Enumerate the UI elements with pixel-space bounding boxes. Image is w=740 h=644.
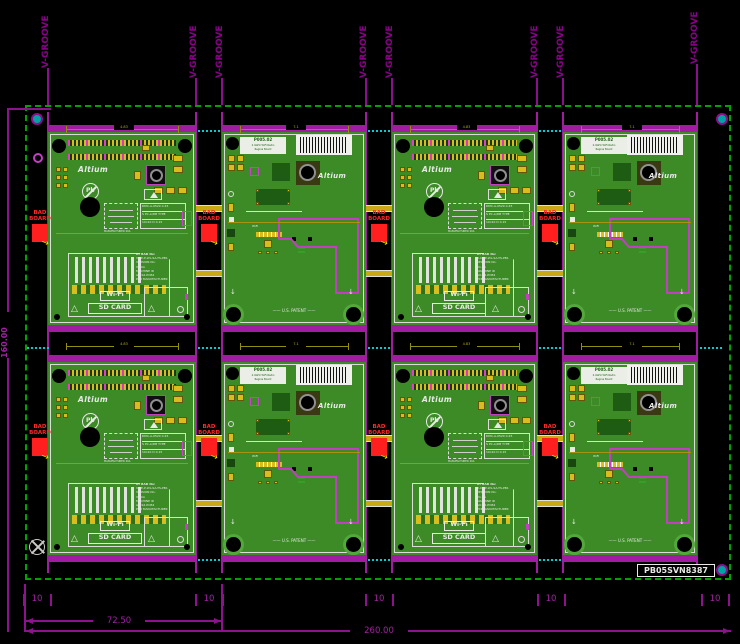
detail-dim-tick [66, 343, 67, 350]
fine-pitch-footprint [256, 419, 290, 435]
smd-component [134, 171, 141, 180]
smd-component [266, 481, 270, 484]
bad-board-label: BOARD [533, 216, 567, 222]
mounting-hole [396, 139, 410, 153]
smd-component [517, 385, 527, 392]
footprint-pad [597, 202, 600, 205]
diode-component [144, 189, 162, 200]
detail-dim-text: 4.83 [457, 342, 477, 347]
footprint-pad [287, 189, 290, 192]
rail-dim-text: 10 [197, 594, 221, 605]
v-groove-label: V-GROOVE [41, 4, 53, 68]
board-title-box: P005.022.4GHz WiFi RadioRegina Board [240, 137, 286, 154]
orientation-arrow-icon: ↓ [230, 519, 238, 528]
scribble-line [108, 216, 134, 217]
v-groove-label: V-GROOVE [690, 0, 702, 64]
polarity-arrow-icon: △ [415, 535, 425, 545]
smd-component [166, 187, 175, 194]
dim-arrow [26, 628, 33, 634]
scribble-line [110, 452, 132, 453]
board-top-edge [392, 355, 537, 362]
orientation-arrow-icon: ↓ [571, 289, 579, 298]
rf-module-can [299, 164, 316, 181]
detail-dim-tick [581, 126, 582, 133]
test-point [569, 191, 575, 197]
smd-component [569, 385, 576, 392]
footprint-pad [597, 432, 600, 435]
corner-hole [525, 544, 531, 550]
footprint-pad [628, 202, 631, 205]
bad-board-label: BOARD [23, 430, 57, 436]
tooling-hole [716, 564, 728, 576]
registration-dots [539, 559, 561, 561]
board-title-box: P005.022.4GHz WiFi RadioRegina Board [581, 137, 627, 154]
mounting-hole [226, 307, 241, 322]
mounting-hole [519, 369, 533, 383]
rf-module [296, 161, 320, 185]
smd-component [599, 251, 603, 254]
altium-logo: Altium [422, 166, 470, 177]
board-info-line: PCB MANUFACTURER [136, 508, 190, 512]
smd-component [578, 385, 585, 392]
corner-hole [54, 314, 60, 320]
bad-board-marker: BADBOARD→ [362, 424, 396, 476]
mounting-hole [178, 139, 192, 153]
diode-arrow [494, 192, 502, 198]
detail-dim-text: 7.1 [286, 342, 306, 347]
barcode [627, 135, 683, 155]
scribble-line [109, 440, 133, 441]
side-connector [523, 441, 533, 456]
part-table-row: DMC-A-0520 0.45 [142, 435, 185, 442]
barcode-stripes [631, 367, 679, 383]
pcb-board-type-a: AltiumPbMANUFACTURED 20ADMC-A-0520 0.45S… [48, 355, 196, 562]
board-bottom-edge [563, 555, 697, 562]
smd-component [228, 394, 235, 401]
footprint-pad [287, 419, 290, 422]
smd-component [142, 375, 150, 381]
part-table-row: 10x10 D 0.15 [142, 451, 185, 458]
rf-module [296, 391, 320, 415]
corner-hole [398, 314, 404, 320]
smd-component [569, 243, 575, 251]
corner-hole [184, 544, 190, 550]
qfn-footprint [613, 163, 631, 181]
smd-component [517, 166, 527, 173]
bad-board-label: BOARD [192, 430, 226, 436]
detail-dim-text: 7.1 [622, 125, 642, 130]
smd-component [237, 385, 244, 392]
smd-component [237, 394, 244, 401]
bad-board-arrow-icon: → [209, 451, 224, 465]
smd-component [56, 405, 61, 410]
board-info-line: PCB MANUFACTURER [477, 508, 531, 512]
barcode [627, 365, 683, 385]
smd-component [63, 167, 68, 172]
bad-board-arrow-icon: → [209, 237, 224, 251]
v-groove-label: V-GROOVE [359, 14, 371, 78]
v-groove-label: V-GROOVE [385, 14, 397, 78]
tooling-hole [31, 113, 43, 125]
orientation-arrow-icon: ↓ [348, 519, 356, 528]
detail-dim-tick [348, 126, 349, 133]
registration-dots [539, 130, 561, 132]
smd-component [258, 481, 262, 484]
v-groove-leader-line [562, 78, 564, 105]
test-point [177, 536, 184, 543]
label-scribble-box [104, 203, 138, 229]
barcode-stripes [300, 137, 348, 153]
mounting-hole [519, 139, 533, 153]
footprint-pad [256, 189, 259, 192]
fine-pitch-footprint [597, 419, 631, 435]
bad-board-marker: BADBOARD→ [362, 210, 396, 262]
smd-component [569, 155, 576, 162]
breakaway-tab [366, 270, 392, 277]
smd-component [178, 417, 187, 424]
mounting-hole [178, 369, 192, 383]
rail-dim-tick [728, 594, 730, 606]
bad-board-label: BOARD [23, 216, 57, 222]
connector-mark [526, 294, 529, 300]
smd-component [228, 164, 235, 171]
part-table-row: 10x10 D 0.15 [142, 221, 185, 228]
board-bottom-edge [563, 325, 697, 332]
tact-button [490, 165, 510, 185]
led-outline [250, 397, 259, 406]
v-groove-label: V-GROOVE [556, 14, 568, 78]
altium-logo: Altium [422, 396, 470, 407]
antenna-keepout-outline [276, 213, 362, 297]
edge-connector-strip [68, 370, 176, 376]
rail-dim-text: 10 [25, 594, 49, 605]
smd-component [407, 167, 412, 172]
led-outline [591, 167, 600, 176]
test-point [569, 421, 575, 427]
board-top-edge [48, 355, 196, 362]
smd-component [228, 433, 234, 442]
board-top-edge [222, 355, 366, 362]
mounting-hole [567, 137, 580, 150]
mounting-hole [52, 369, 66, 383]
footprint-pad [628, 432, 631, 435]
diode-arrow [494, 422, 502, 428]
fine-pitch-footprint [256, 189, 290, 205]
side-connector [182, 441, 192, 456]
barcode [296, 135, 352, 155]
smd-component [400, 167, 405, 172]
smd-component [237, 155, 244, 162]
detail-dim-tick [679, 126, 680, 133]
tact-button [490, 395, 510, 415]
pcb-board-type-b: P005.022.4GHz WiFi RadioRegina BoardAlti… [222, 125, 366, 332]
smd-component [400, 175, 405, 180]
routed-trace [400, 463, 529, 464]
shield-outline [144, 287, 188, 317]
sd-connector-pins [75, 257, 143, 283]
smd-component [599, 481, 603, 484]
connector-mark [185, 524, 188, 530]
edge-connector-strip [412, 154, 517, 160]
antenna-keepout-path [279, 219, 358, 293]
shield-outline [485, 287, 529, 317]
v-groove-label: V-GROOVE [215, 14, 227, 78]
smd-component [478, 171, 485, 180]
scribble-line [454, 452, 476, 453]
corner-hole [525, 314, 531, 320]
smd-component [63, 405, 68, 410]
mounting-hole [80, 427, 100, 447]
sub-width-dim-text: 72.50 [93, 615, 145, 627]
antenna-keepout-path [610, 219, 689, 293]
mounting-hole [424, 197, 444, 217]
silk-line [246, 211, 302, 212]
mounting-hole [346, 307, 361, 322]
routed-trace [228, 222, 360, 223]
smd-component [407, 413, 412, 418]
detail-dim-tick [178, 343, 179, 350]
mounting-hole [567, 537, 582, 552]
pcb-board-type-a: AltiumPbMANUFACTURED 20ADMC-A-0520 0.45S… [392, 125, 537, 332]
rail-dim-tick [564, 594, 566, 606]
test-point [177, 306, 184, 313]
corner-hole [398, 544, 404, 550]
detail-dim-tick [410, 343, 411, 350]
smd-component [173, 396, 183, 403]
scribble-line [109, 210, 133, 211]
part-table-row: S PC-A/DB TYPE [142, 213, 185, 220]
bad-board-marker: BADBOARD→ [23, 210, 57, 262]
smd-component [264, 470, 272, 478]
dim-arrow [214, 618, 221, 624]
test-point [228, 421, 234, 427]
orientation-arrow-icon: ↓ [571, 519, 579, 528]
mounting-hole [677, 537, 692, 552]
altium-logo: Altium [318, 173, 360, 183]
rail-dim-text: 10 [367, 594, 391, 605]
smd-component [63, 183, 68, 188]
orientation-arrow-icon: ↓ [348, 289, 356, 298]
qfn-footprint [272, 393, 290, 411]
smd-component [407, 183, 412, 188]
footprint-pad [256, 432, 259, 435]
footprint-pad [628, 419, 631, 422]
board-subtitle: Regina Board [581, 378, 627, 382]
antenna-keepout-outline [276, 443, 362, 527]
board-bottom-edge [48, 555, 196, 562]
antenna-keepout-path [610, 449, 689, 523]
label-scribble-box [448, 203, 482, 229]
mounting-hole [677, 307, 692, 322]
routed-trace [400, 233, 529, 234]
smd-component [486, 145, 494, 151]
test-point [518, 536, 525, 543]
shield-outline [144, 517, 188, 547]
polarity-arrow-icon: △ [415, 305, 425, 315]
board-bottom-edge [48, 325, 196, 332]
connector-mark [185, 294, 188, 300]
qfn-footprint [613, 393, 631, 411]
left-dim-top-tick [7, 108, 51, 110]
v-groove-leader-line [391, 78, 393, 105]
part-table: DMC-A-0520 0.45S PC-A/DB TYPE10x10 D 0.1… [140, 203, 186, 229]
sd-card-label: SD CARD [88, 533, 142, 544]
detail-dim-text: 7.1 [286, 125, 306, 130]
routed-trace [569, 222, 691, 223]
smd-component [227, 459, 235, 467]
panel-height-dim: 160.00 [0, 312, 12, 358]
origin-marker [29, 539, 45, 555]
patent-label: —— U.S. PATENT —— [222, 309, 366, 315]
smd-component [568, 459, 576, 467]
rail-dim-text: 10 [539, 594, 563, 605]
silk-line [246, 441, 302, 442]
smd-component [266, 251, 270, 254]
smd-component [228, 473, 234, 481]
smd-component [400, 183, 405, 188]
detail-dim-text: 4.83 [457, 125, 477, 130]
board-bottom-edge [222, 325, 366, 332]
mounting-hole [80, 197, 100, 217]
tooling-hole [716, 113, 728, 125]
edge-connector-strip [412, 384, 517, 390]
board-subtitle: Regina Board [240, 148, 286, 152]
smd-component [63, 413, 68, 418]
smd-component [510, 187, 519, 194]
mounting-hole [424, 427, 444, 447]
polarity-arrow-icon: △ [71, 305, 81, 315]
smd-component [486, 375, 494, 381]
wifi-label: Wi-Fi [100, 521, 130, 531]
fiducial-ring [33, 153, 43, 163]
v-groove-leader-line [221, 78, 223, 105]
bad-board-marker: BADBOARD→ [192, 210, 226, 262]
polarity-arrow-icon: △ [71, 535, 81, 545]
pcb-board-type-b: P005.022.4GHz WiFi RadioRegina BoardAlti… [563, 125, 697, 332]
led-outline [591, 397, 600, 406]
board-info-line: PCB MANUFACTURER [477, 278, 531, 282]
smd-component [578, 155, 585, 162]
board-title: P005.02 [240, 368, 286, 373]
wifi-label: Wi-Fi [100, 291, 130, 301]
smd-component [478, 401, 485, 410]
footprint-pad [597, 189, 600, 192]
smd-component [569, 473, 575, 481]
fine-pitch-footprint [597, 189, 631, 205]
part-table-row: S PC-A/DB TYPE [142, 443, 185, 450]
diode-component [144, 419, 162, 430]
board-title: P005.02 [581, 138, 627, 143]
tact-button-cap [150, 399, 163, 412]
mounting-hole [396, 369, 410, 383]
board-top-edge [563, 355, 697, 362]
scribble-line [454, 222, 476, 223]
smd-component [166, 417, 175, 424]
dim-ext-line [221, 584, 223, 632]
altium-logo: Altium [78, 166, 126, 177]
registration-dots [368, 559, 390, 561]
label-scribble-box [448, 433, 482, 459]
test-point [228, 191, 234, 197]
led-outline [250, 167, 259, 176]
footprint-pad [597, 419, 600, 422]
detail-dim-text: 7.1 [622, 342, 642, 347]
dim-arrow [26, 618, 33, 624]
edge-connector-strip [68, 154, 176, 160]
v-groove-label: V-GROOVE [530, 14, 542, 78]
smd-component [407, 405, 412, 410]
smd-component [56, 167, 61, 172]
breakaway-tab [537, 500, 563, 507]
rail-dim-tick [392, 594, 394, 606]
bad-board-marker: BADBOARD→ [533, 424, 567, 476]
board-title-box: P005.022.4GHz WiFi RadioRegina Board [240, 367, 286, 384]
edge-connector-strip [412, 140, 517, 146]
smd-component [56, 413, 61, 418]
bad-board-marker: BADBOARD→ [23, 424, 57, 476]
smd-component [407, 175, 412, 180]
mounting-hole [346, 537, 361, 552]
board-info-line: PCB MANUFACTURER [136, 278, 190, 282]
v-groove-leader-line [195, 78, 197, 105]
smd-component [517, 155, 527, 162]
dim-ext-line [24, 584, 26, 632]
total-width-dim-text: 260.00 [350, 625, 408, 637]
v-groove-leader-line [536, 78, 538, 105]
detail-dim-tick [519, 343, 520, 350]
smd-component [63, 175, 68, 180]
smd-component [173, 166, 183, 173]
diode-arrow [150, 422, 158, 428]
footprint-pad [287, 202, 290, 205]
board-subtitle: Regina Board [581, 148, 627, 152]
dim-arrow [723, 628, 730, 634]
detail-dim-tick [519, 126, 520, 133]
v-groove-leader-line [365, 78, 367, 105]
barcode [296, 365, 352, 385]
board-bottom-edge [222, 555, 366, 562]
smd-component [569, 433, 575, 442]
diode-component [488, 419, 506, 430]
smd-component [56, 397, 61, 402]
mounting-hole [52, 139, 66, 153]
left-dim-line [7, 108, 9, 632]
bad-board-label: BOARD [362, 216, 396, 222]
registration-dots [198, 130, 220, 132]
pcb-board-type-b: P005.022.4GHz WiFi RadioRegina BoardAlti… [222, 355, 366, 562]
connector-mark [526, 524, 529, 530]
silk-line [587, 441, 643, 442]
diode-component [488, 189, 506, 200]
smd-component [56, 175, 61, 180]
v-groove-leader-line [47, 68, 49, 105]
registration-dots [368, 130, 390, 132]
rail-dim-text: 10 [703, 594, 727, 605]
detail-dim-tick [679, 343, 680, 350]
smd-component [258, 251, 262, 254]
bad-board-marker: BADBOARD→ [533, 210, 567, 262]
panel-serial-label: PB05SVN8387 [637, 564, 715, 577]
smd-component [237, 164, 244, 171]
barcode-stripes [631, 137, 679, 153]
board-title: P005.02 [581, 368, 627, 373]
test-point [518, 306, 525, 313]
altium-logo: Altium [318, 403, 360, 413]
mounting-hole [226, 137, 239, 150]
tact-button-cap [494, 399, 507, 412]
bad-board-arrow-icon: → [40, 451, 55, 465]
bad-board-label: BOARD [192, 216, 226, 222]
